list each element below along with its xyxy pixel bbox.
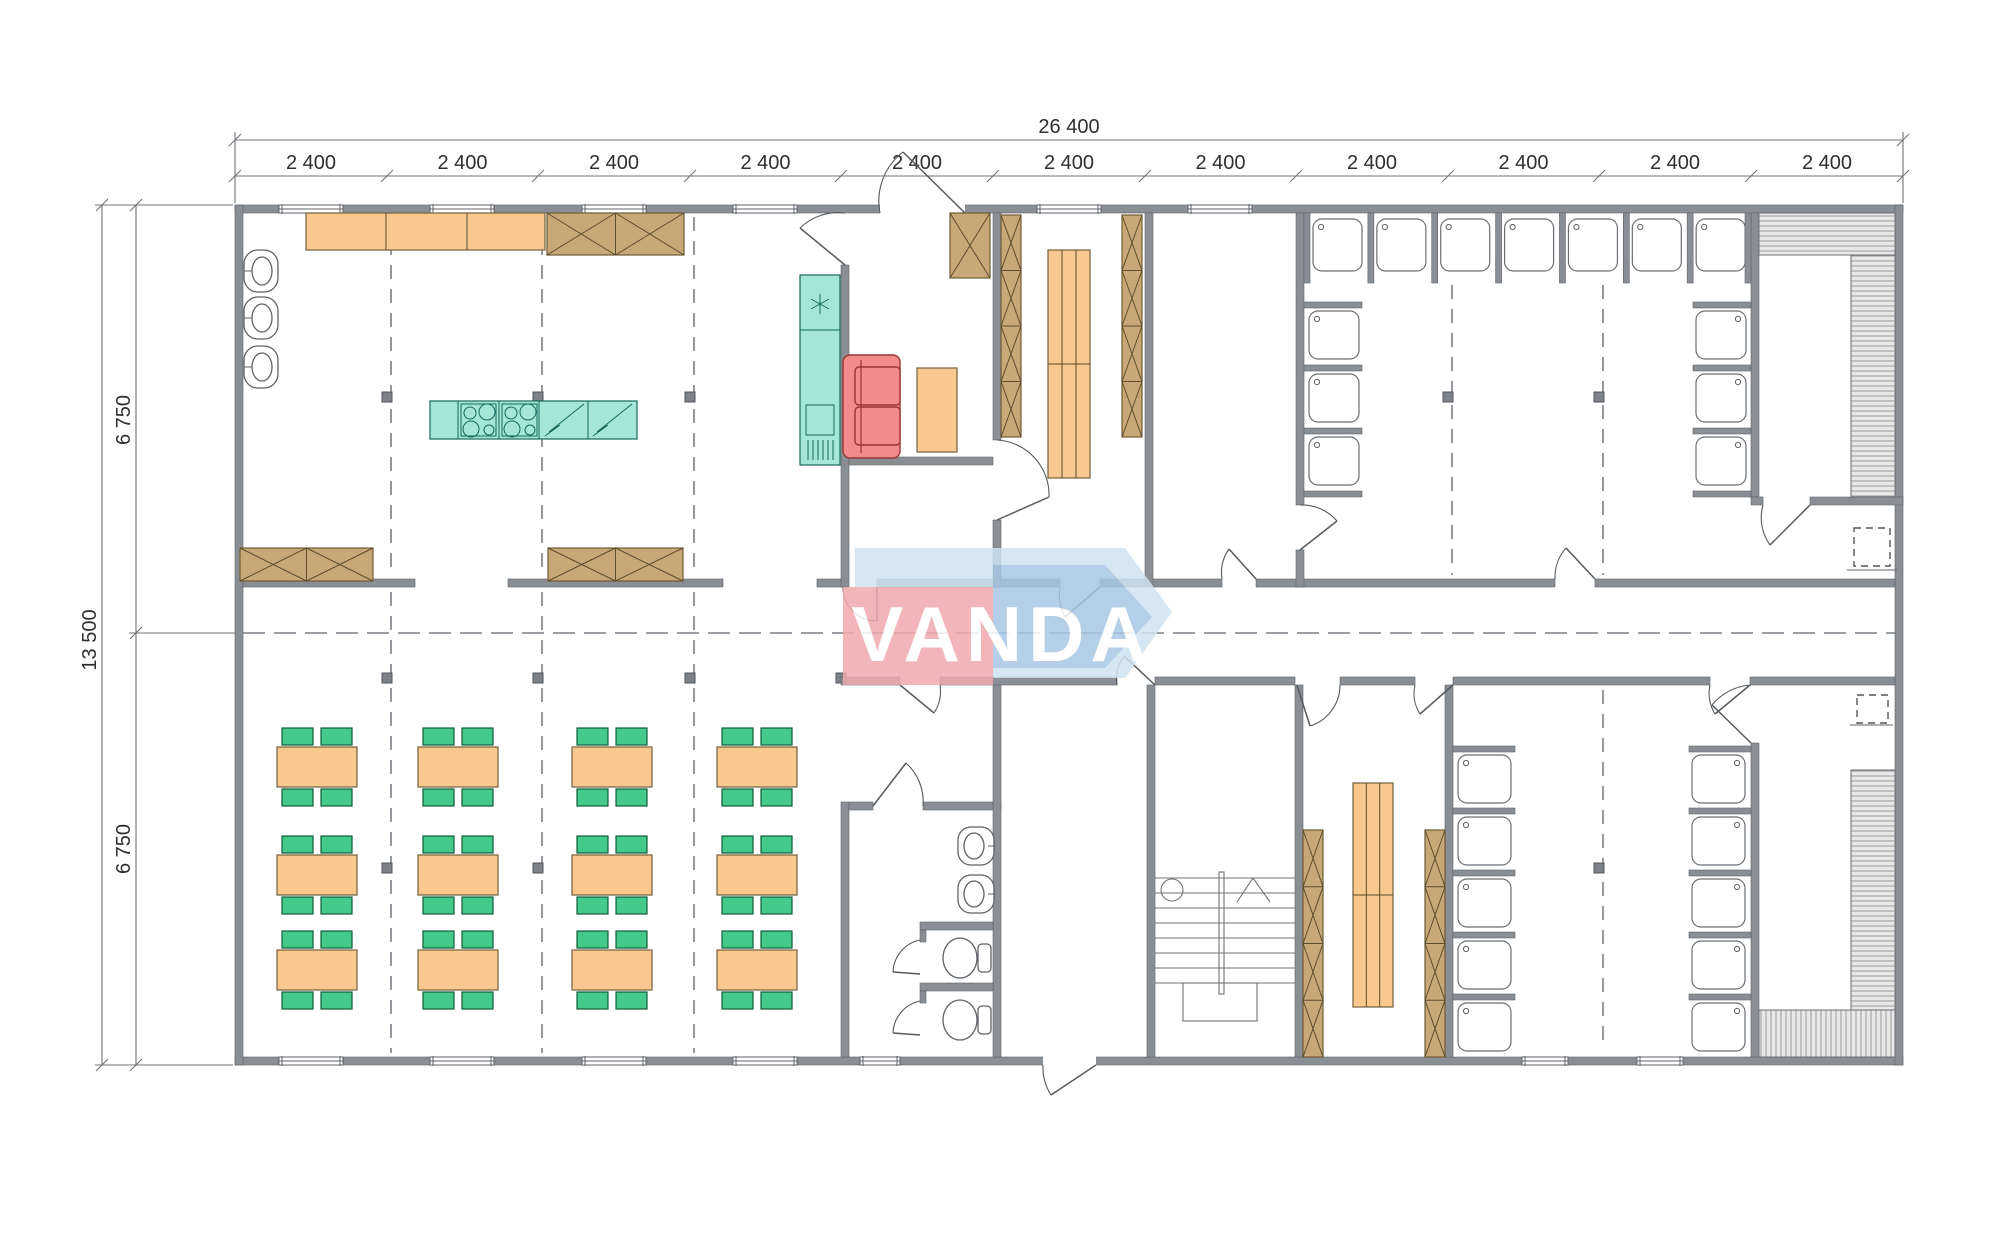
shower-stall xyxy=(1696,219,1745,271)
wall-basin-icon xyxy=(244,297,278,339)
main-entrance-door-arc xyxy=(1043,1065,1051,1095)
chair xyxy=(423,931,454,948)
bench xyxy=(1048,250,1090,478)
shower-stall xyxy=(1692,1003,1745,1051)
shower-stall xyxy=(1377,219,1426,271)
shower-stall xyxy=(1458,817,1511,865)
column xyxy=(533,673,543,683)
overall-width-label: 26 400 xyxy=(1038,116,1099,138)
dining-table-group xyxy=(277,836,357,914)
chair xyxy=(616,897,647,914)
chair xyxy=(722,836,753,853)
bay-dimension-label: 2 400 xyxy=(1498,152,1548,174)
chair xyxy=(423,897,454,914)
locker-strip xyxy=(1303,830,1323,1057)
chair xyxy=(282,789,313,806)
wash-basin-icon xyxy=(958,875,995,913)
sauna-bench-platform xyxy=(1759,213,1895,255)
sauna-upper-door-arc xyxy=(1761,505,1770,545)
chair xyxy=(722,728,753,745)
kitchen-crossed-counter-right xyxy=(548,548,683,581)
column xyxy=(1594,863,1604,873)
chair xyxy=(722,931,753,948)
staircase xyxy=(1155,872,1295,1021)
kitchen-counter xyxy=(306,213,545,250)
shower-stall xyxy=(1692,755,1745,803)
sauna-bench-platform xyxy=(1851,770,1895,1010)
shower-stall xyxy=(1568,219,1617,271)
chair xyxy=(722,897,753,914)
height-dimension-label: 6 750 xyxy=(113,395,135,445)
column xyxy=(685,673,695,683)
dining-table-group xyxy=(418,931,498,1009)
chair xyxy=(321,836,352,853)
kitchen-island xyxy=(430,401,637,439)
bay-dimension-label: 2 400 xyxy=(1347,152,1397,174)
chair xyxy=(616,992,647,1009)
sauna-bench-platform xyxy=(1851,255,1895,497)
wc-area xyxy=(943,827,995,1040)
table xyxy=(418,950,498,990)
table xyxy=(418,855,498,895)
chair xyxy=(577,728,608,745)
column xyxy=(685,392,695,402)
shower-stall xyxy=(1458,755,1511,803)
dining-table-group xyxy=(572,931,652,1009)
sofa xyxy=(843,355,900,458)
toilet-icon xyxy=(943,1000,991,1040)
chair xyxy=(462,728,493,745)
bay-dimension-label: 2 400 xyxy=(740,152,790,174)
chair xyxy=(321,931,352,948)
table xyxy=(572,747,652,787)
dining-table-group xyxy=(717,728,797,806)
lounge-wardrobe xyxy=(950,213,990,278)
chair xyxy=(462,836,493,853)
chair xyxy=(761,789,792,806)
shower-stall xyxy=(1309,437,1359,485)
chair xyxy=(761,836,792,853)
bay-dimension-label: 2 400 xyxy=(589,152,639,174)
toilet-icon xyxy=(943,938,991,978)
dining-table-group xyxy=(277,931,357,1009)
chair xyxy=(462,992,493,1009)
chair xyxy=(462,931,493,948)
bench xyxy=(1353,783,1393,1007)
table xyxy=(277,855,357,895)
column xyxy=(382,392,392,402)
table xyxy=(277,950,357,990)
stair-start-circle xyxy=(1161,879,1183,901)
table xyxy=(418,747,498,787)
column xyxy=(1594,392,1604,402)
kitchen-wall-basins xyxy=(244,250,278,388)
column xyxy=(382,863,392,873)
sauna-lower-door-arc xyxy=(1712,685,1751,705)
chair xyxy=(616,789,647,806)
dining-table-group xyxy=(572,728,652,806)
shower-stall xyxy=(1692,879,1745,927)
table xyxy=(572,950,652,990)
floor-plan-drawing: 26 400 13 500 2 4002 4002 4002 4002 4002… xyxy=(0,0,2000,1235)
table xyxy=(277,747,357,787)
chair xyxy=(321,992,352,1009)
chair xyxy=(577,897,608,914)
shower-stall xyxy=(1692,941,1745,989)
lounge-area xyxy=(843,213,990,458)
chair xyxy=(282,836,313,853)
kitchen-crossed-cabinet xyxy=(547,213,684,255)
wash-basin-icon xyxy=(958,827,995,865)
shower-stall xyxy=(1692,817,1745,865)
bay-dimension-label: 2 400 xyxy=(1650,152,1700,174)
locker-strip xyxy=(1425,830,1445,1057)
sauna-bench-platform xyxy=(1759,1010,1895,1057)
chair xyxy=(577,836,608,853)
chair xyxy=(423,992,454,1009)
chair xyxy=(282,992,313,1009)
shower-stall xyxy=(1505,219,1554,271)
table xyxy=(717,950,797,990)
chair xyxy=(321,728,352,745)
watermark: VANDA xyxy=(843,548,1172,685)
shower-stall xyxy=(1309,311,1359,359)
chair xyxy=(577,992,608,1009)
locker-strip xyxy=(1001,215,1021,437)
dimension-left-overall: 13 500 xyxy=(79,199,243,1071)
chair xyxy=(282,728,313,745)
shower-stall xyxy=(1696,437,1746,485)
dining-table-group xyxy=(572,836,652,914)
watermark-text: VANDA xyxy=(851,590,1153,678)
column xyxy=(1443,392,1453,402)
chair xyxy=(321,789,352,806)
dining-table-group xyxy=(717,836,797,914)
chair xyxy=(282,897,313,914)
shower-stall xyxy=(1632,219,1681,271)
chair xyxy=(462,789,493,806)
chair xyxy=(761,992,792,1009)
bay-dimension-label: 2 400 xyxy=(1044,152,1094,174)
chair xyxy=(423,836,454,853)
dining-table-group xyxy=(717,931,797,1009)
table xyxy=(717,747,797,787)
sauna-heater-icon xyxy=(1854,528,1890,566)
chair xyxy=(282,931,313,948)
shower-stall xyxy=(1313,219,1362,271)
kitchen-door-arc xyxy=(800,213,845,228)
height-dimension-label: 6 750 xyxy=(113,824,135,874)
shower-stall xyxy=(1696,311,1746,359)
shower-stall xyxy=(1458,1003,1511,1051)
shower-stall xyxy=(1458,941,1511,989)
kitchen-crossed-counter-left xyxy=(240,548,373,581)
chair xyxy=(761,931,792,948)
chair xyxy=(722,992,753,1009)
floor-plan-page: 26 400 13 500 2 4002 4002 4002 4002 4002… xyxy=(0,0,2000,1235)
shower-stall xyxy=(1696,374,1746,422)
overall-height-label: 13 500 xyxy=(79,609,101,670)
table xyxy=(717,855,797,895)
chair xyxy=(577,789,608,806)
bay-dimension-label: 2 400 xyxy=(1195,152,1245,174)
chair xyxy=(761,897,792,914)
chair xyxy=(577,931,608,948)
kitchen-fridge-unit xyxy=(800,275,840,465)
table xyxy=(572,855,652,895)
bay-dimension-label: 2 400 xyxy=(1802,152,1852,174)
chair xyxy=(423,728,454,745)
chair xyxy=(722,789,753,806)
shower-stall xyxy=(1441,219,1490,271)
chair xyxy=(423,789,454,806)
chair xyxy=(616,728,647,745)
main-entrance-door-gap xyxy=(1043,1055,1096,1067)
wall-basin-icon xyxy=(244,346,278,388)
bay-dimension-label: 2 400 xyxy=(437,152,487,174)
chair xyxy=(462,897,493,914)
dining-table-group xyxy=(418,836,498,914)
column xyxy=(382,673,392,683)
locker-strip xyxy=(1122,215,1142,437)
bay-dimension-label: 2 400 xyxy=(286,152,336,174)
dining-table-group xyxy=(277,728,357,806)
shower-stall xyxy=(1458,879,1511,927)
chair xyxy=(616,931,647,948)
sauna-upper xyxy=(1759,213,1897,570)
stair-up-arrow-icon xyxy=(1237,878,1270,902)
sauna-heater-icon xyxy=(1857,695,1888,723)
wc-door-arc xyxy=(906,763,923,806)
column xyxy=(533,863,543,873)
lounge-table xyxy=(917,368,957,452)
sauna-lower xyxy=(1759,695,1895,1057)
chair xyxy=(616,836,647,853)
wall-basin-icon xyxy=(244,250,278,292)
chair xyxy=(761,728,792,745)
dining-table-group xyxy=(418,728,498,806)
chair xyxy=(321,897,352,914)
shower-stall xyxy=(1309,374,1359,422)
